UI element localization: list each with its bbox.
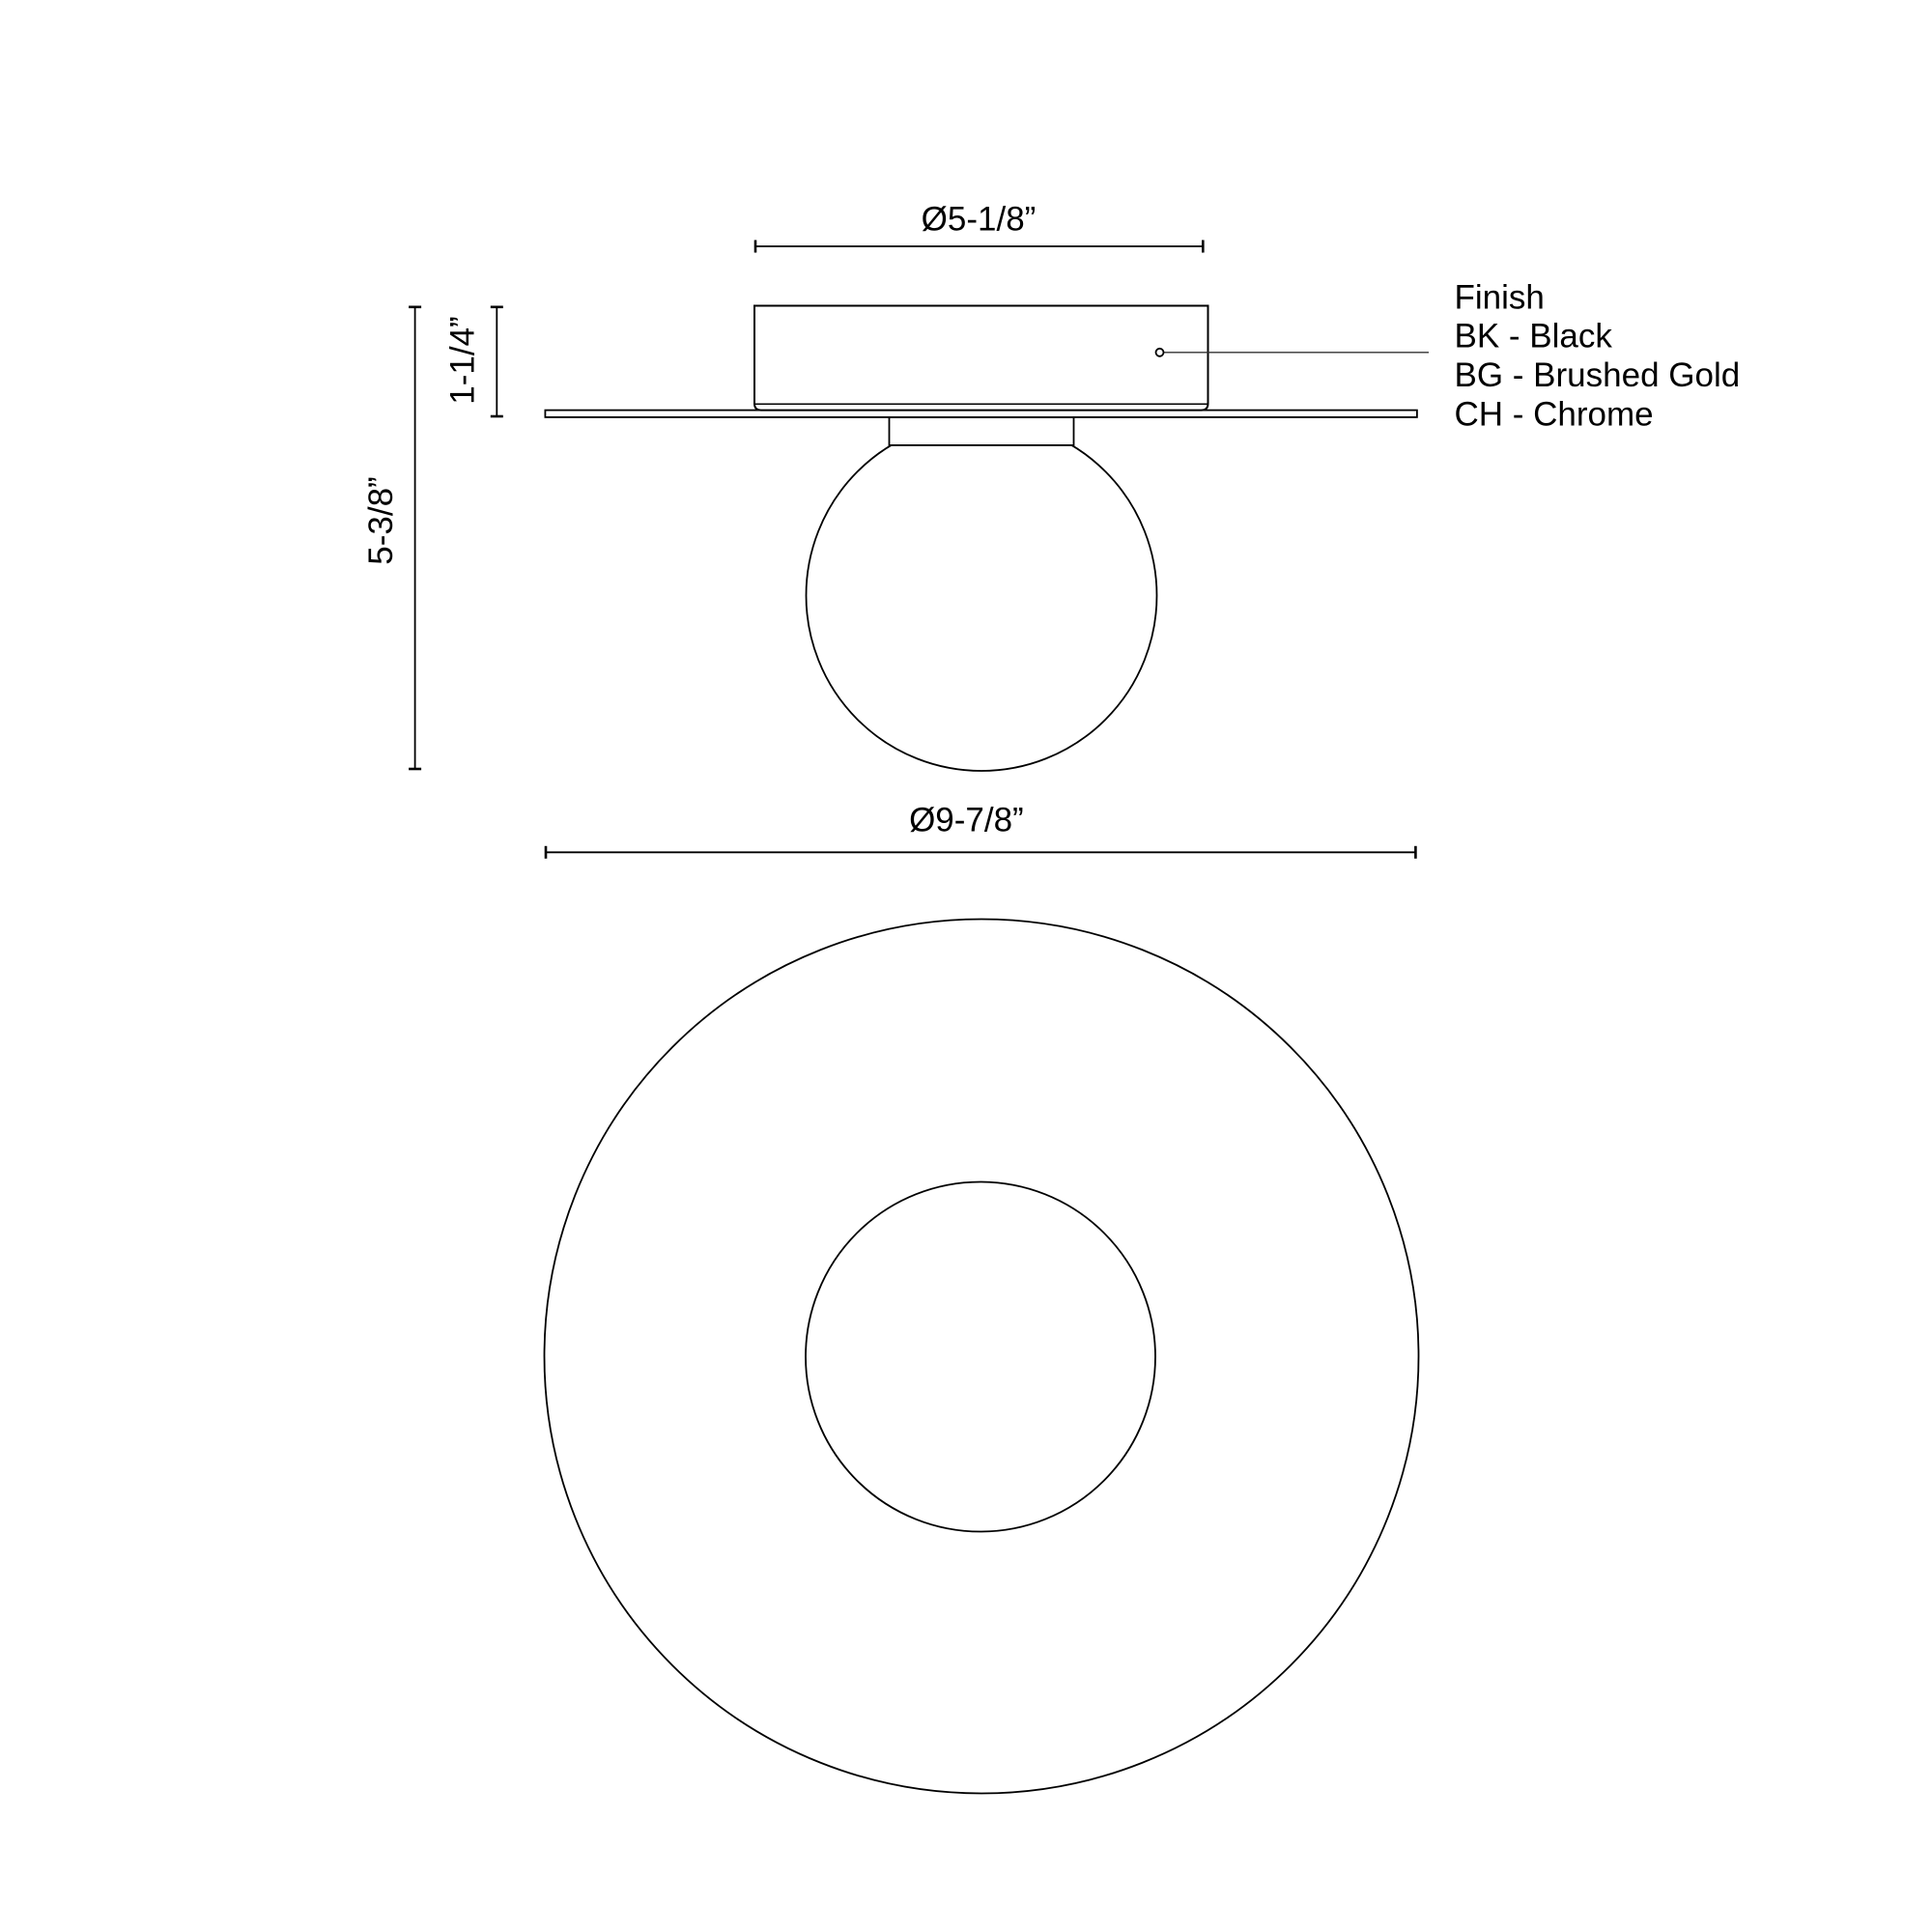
svg-text:BK - Black: BK - Black [1455,318,1613,355]
svg-text:Ø5-1/8”: Ø5-1/8” [922,200,1037,238]
svg-text:CH - Chrome: CH - Chrome [1455,395,1654,433]
svg-text:Finish: Finish [1455,279,1545,317]
svg-text:BG - Brushed Gold: BG - Brushed Gold [1455,356,1741,394]
svg-text:5-3/8”: 5-3/8” [362,476,400,564]
svg-text:1-1/4”: 1-1/4” [444,316,482,404]
svg-text:Ø9-7/8”: Ø9-7/8” [909,802,1024,839]
